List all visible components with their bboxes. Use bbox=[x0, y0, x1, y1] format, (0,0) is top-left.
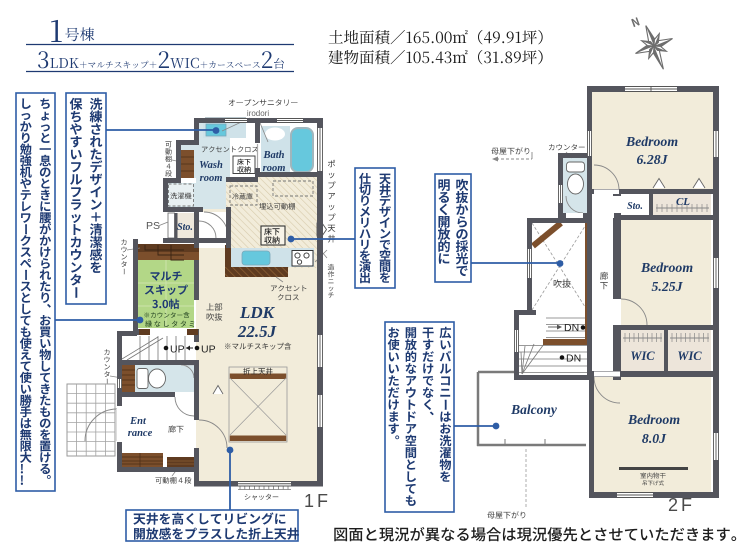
svg-text:UP: UP bbox=[170, 344, 185, 356]
svg-text:WIC: WIC bbox=[630, 349, 655, 363]
svg-text:rance: rance bbox=[128, 428, 153, 439]
svg-text:Bedroom: Bedroom bbox=[625, 134, 678, 149]
svg-text:8.0J: 8.0J bbox=[642, 431, 667, 446]
svg-text:5.25J: 5.25J bbox=[651, 279, 683, 294]
svg-text:6.28J: 6.28J bbox=[636, 152, 668, 167]
svg-text:Sto.: Sto. bbox=[627, 201, 643, 212]
svg-text:Sto.: Sto. bbox=[177, 222, 193, 233]
svg-text:Wash: Wash bbox=[199, 160, 223, 171]
svg-text:Balcony: Balcony bbox=[510, 402, 558, 417]
svg-text:UP: UP bbox=[201, 344, 216, 356]
svg-text:Bath: Bath bbox=[262, 150, 284, 161]
svg-text:22.5J: 22.5J bbox=[237, 322, 277, 341]
svg-text:PS: PS bbox=[146, 220, 160, 232]
svg-text:2F: 2F bbox=[668, 495, 695, 515]
svg-text:room: room bbox=[200, 173, 223, 184]
svg-text:CL: CL bbox=[676, 196, 690, 208]
svg-text:1F: 1F bbox=[304, 491, 331, 511]
svg-text:Bedroom: Bedroom bbox=[627, 412, 680, 427]
svg-text:DN: DN bbox=[564, 322, 579, 334]
svg-text:Bedroom: Bedroom bbox=[640, 260, 693, 275]
svg-text:WIC: WIC bbox=[677, 349, 702, 363]
svg-text:LDK: LDK bbox=[239, 303, 276, 322]
svg-text:DN: DN bbox=[566, 353, 581, 365]
svg-text:irodori: irodori bbox=[247, 109, 269, 118]
svg-text:Ent: Ent bbox=[129, 416, 147, 427]
